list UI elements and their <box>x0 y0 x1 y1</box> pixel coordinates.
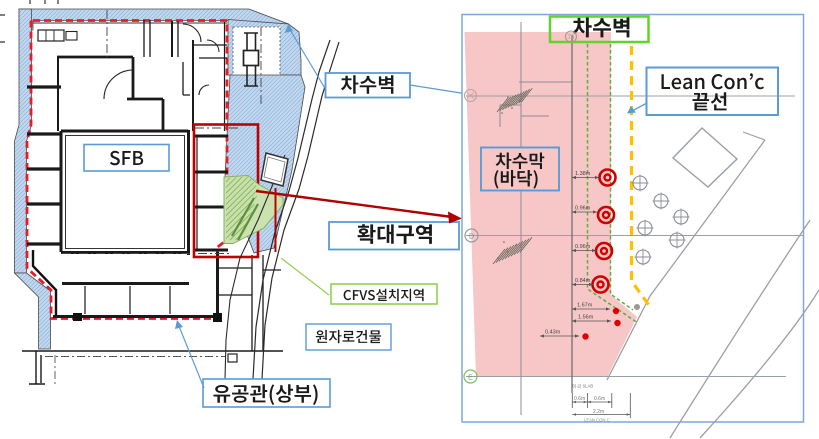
svg-text:1.67m: 1.67m <box>577 303 593 309</box>
svg-text:E: E <box>468 375 473 382</box>
svg-text:B(-2) SLAB: B(-2) SLAB <box>572 384 593 389</box>
svg-text:76: 76 <box>568 35 575 41</box>
svg-text:0.43m: 0.43m <box>545 330 561 336</box>
svg-text:D: D <box>469 234 474 241</box>
svg-text:1.38m: 1.38m <box>575 171 591 177</box>
svg-text:0.84m: 0.84m <box>575 278 591 284</box>
svg-text:LEAN CON C: LEAN CON C <box>584 418 610 423</box>
svg-text:0.96m: 0.96m <box>575 206 591 212</box>
svg-text:1.56m: 1.56m <box>578 315 594 321</box>
svg-text:0.6m: 0.6m <box>594 396 605 402</box>
svg-text:0.96m: 0.96m <box>575 244 591 250</box>
svg-text:2.2m: 2.2m <box>593 409 604 415</box>
